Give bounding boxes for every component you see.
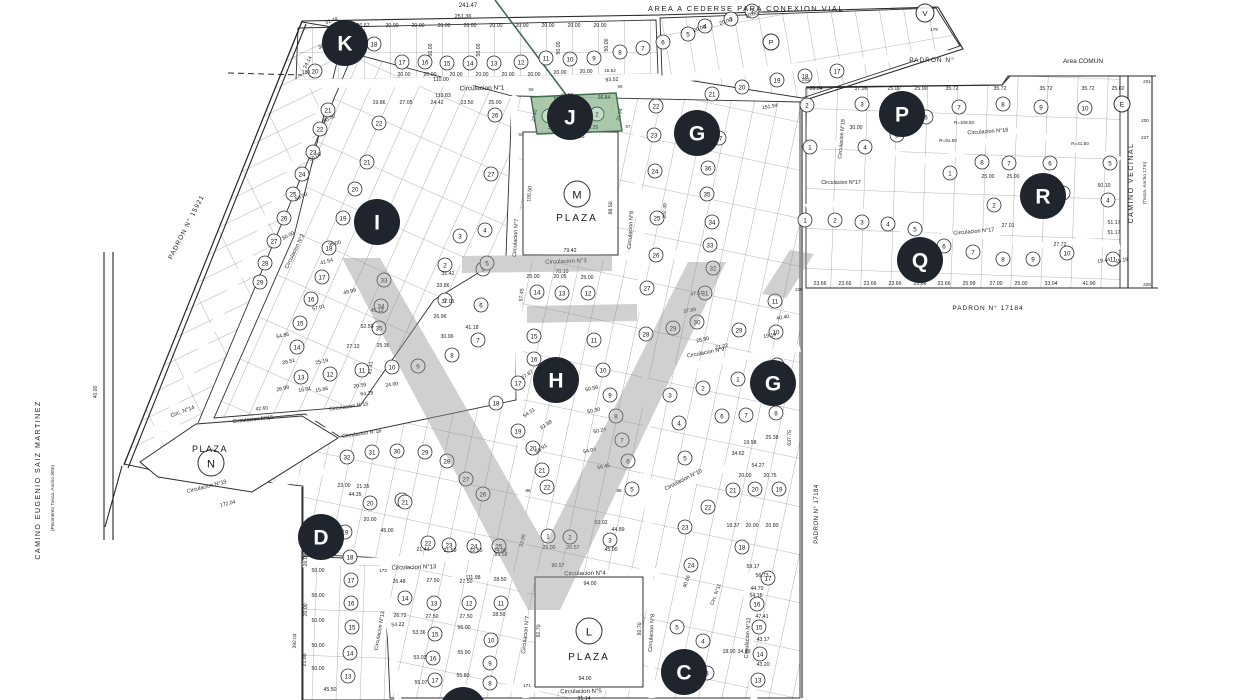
svg-text:18: 18 <box>371 41 378 48</box>
marker-R[interactable]: R <box>1020 173 1066 219</box>
svg-text:14: 14 <box>294 344 301 351</box>
svg-text:D: D <box>313 527 328 550</box>
svg-text:35: 35 <box>704 191 711 198</box>
svg-text:15.19: 15.19 <box>1115 257 1129 265</box>
svg-text:21.00: 21.00 <box>302 653 308 666</box>
svg-text:20.00: 20.00 <box>450 72 463 78</box>
svg-text:6: 6 <box>479 302 483 309</box>
svg-text:20: 20 <box>367 500 374 507</box>
svg-text:7: 7 <box>971 249 975 256</box>
svg-text:19: 19 <box>515 428 522 435</box>
svg-text:25.38: 25.38 <box>766 435 779 441</box>
svg-text:25.00: 25.00 <box>581 275 594 281</box>
svg-text:23: 23 <box>651 132 658 139</box>
svg-text:19: 19 <box>776 486 783 493</box>
svg-text:15: 15 <box>531 333 538 340</box>
svg-text:21.59: 21.59 <box>444 548 457 554</box>
svg-text:5: 5 <box>1108 160 1112 167</box>
svg-text:55.80: 55.80 <box>457 673 470 679</box>
cadastral-plan-image: 1255.7336.8427.4035.6730.2521.9459585755… <box>0 0 1240 700</box>
svg-text:28: 28 <box>262 260 269 267</box>
svg-text:17: 17 <box>432 677 439 684</box>
svg-text:17: 17 <box>515 380 522 387</box>
svg-text:20.00: 20.00 <box>412 23 425 29</box>
svg-text:1: 1 <box>736 376 740 383</box>
svg-text:173: 173 <box>379 568 387 573</box>
svg-text:15: 15 <box>432 631 439 638</box>
svg-text:50.00: 50.00 <box>556 41 562 54</box>
svg-text:3: 3 <box>458 233 462 240</box>
svg-text:50.00: 50.00 <box>312 666 325 672</box>
svg-text:(Pavimento Tosca. Ancho 30m): (Pavimento Tosca. Ancho 30m) <box>50 464 56 531</box>
svg-text:4: 4 <box>701 638 705 645</box>
svg-text:18.37: 18.37 <box>727 523 740 529</box>
svg-text:31: 31 <box>369 449 376 456</box>
svg-text:4: 4 <box>863 144 867 151</box>
svg-text:15: 15 <box>756 624 763 631</box>
svg-text:14: 14 <box>534 289 541 296</box>
svg-text:23.66: 23.66 <box>889 281 902 287</box>
svg-text:2: 2 <box>701 385 705 392</box>
svg-text:19: 19 <box>774 77 781 84</box>
svg-text:L: L <box>586 626 592 638</box>
svg-text:P: P <box>769 40 774 47</box>
svg-text:13: 13 <box>491 60 498 67</box>
svg-text:8: 8 <box>618 49 622 56</box>
svg-text:M: M <box>572 189 581 201</box>
marker-G[interactable]: G <box>750 360 796 406</box>
svg-text:8: 8 <box>1001 256 1005 263</box>
svg-text:45.50: 45.50 <box>324 687 337 693</box>
svg-text:21: 21 <box>364 159 371 166</box>
svg-text:6: 6 <box>942 243 946 250</box>
svg-text:AREA A CEDERSE PARA CONEXION V: AREA A CEDERSE PARA CONEXION VIAL <box>648 4 844 13</box>
svg-text:27.50: 27.50 <box>426 614 439 620</box>
svg-text:10: 10 <box>567 56 574 63</box>
svg-text:44.89: 44.89 <box>612 527 625 533</box>
svg-text:20.00: 20.00 <box>594 23 607 29</box>
svg-text:22: 22 <box>376 120 383 127</box>
svg-text:20.00: 20.00 <box>502 72 515 78</box>
svg-text:24.42: 24.42 <box>431 100 444 106</box>
svg-text:22: 22 <box>653 103 660 110</box>
svg-text:180: 180 <box>302 70 311 76</box>
svg-text:26.48: 26.48 <box>393 579 406 585</box>
svg-text:19.86: 19.86 <box>373 100 386 106</box>
svg-text:25.00: 25.00 <box>489 100 502 106</box>
svg-text:14: 14 <box>347 650 354 657</box>
svg-text:94.00: 94.00 <box>584 581 597 587</box>
svg-text:44.70: 44.70 <box>751 586 764 592</box>
svg-text:E: E <box>1120 102 1125 109</box>
svg-text:33.04: 33.04 <box>1045 281 1058 287</box>
svg-text:J: J <box>564 107 576 130</box>
svg-text:15: 15 <box>349 624 356 631</box>
svg-text:11: 11 <box>359 367 366 374</box>
svg-text:28.50: 28.50 <box>494 577 507 583</box>
watermark-bar <box>527 304 637 323</box>
svg-text:27: 27 <box>488 171 495 178</box>
svg-text:19.98: 19.98 <box>744 440 757 446</box>
svg-text:13: 13 <box>559 290 566 297</box>
svg-text:29: 29 <box>736 327 743 334</box>
svg-text:17: 17 <box>834 68 841 75</box>
svg-text:20.00: 20.00 <box>438 23 451 29</box>
svg-text:34.49: 34.49 <box>738 649 751 655</box>
svg-text:37.01: 37.01 <box>442 299 455 305</box>
svg-text:57.45: 57.45 <box>518 288 525 302</box>
svg-text:227: 227 <box>1141 135 1149 140</box>
svg-text:PLAZA: PLAZA <box>192 444 228 454</box>
svg-text:R=108.50: R=108.50 <box>954 120 974 125</box>
svg-text:PADRON N° 17184: PADRON N° 17184 <box>952 304 1023 312</box>
svg-text:25.00: 25.00 <box>1015 281 1028 287</box>
svg-text:20.00: 20.00 <box>554 70 567 76</box>
svg-text:45.00: 45.00 <box>605 547 618 553</box>
svg-text:15: 15 <box>297 320 304 327</box>
svg-text:27.01: 27.01 <box>1002 223 1015 229</box>
svg-text:12: 12 <box>585 290 592 297</box>
svg-text:4: 4 <box>677 420 681 427</box>
svg-text:20: 20 <box>739 84 746 91</box>
svg-text:53.03: 53.03 <box>414 655 427 661</box>
svg-text:20.00: 20.00 <box>476 72 489 78</box>
svg-text:50.00: 50.00 <box>428 43 434 56</box>
svg-text:50.00: 50.00 <box>476 43 482 56</box>
svg-text:41.18: 41.18 <box>466 325 479 331</box>
svg-text:59.17: 59.17 <box>747 564 760 570</box>
svg-text:13: 13 <box>431 600 438 607</box>
svg-text:8: 8 <box>980 159 984 166</box>
svg-text:20.00: 20.00 <box>528 72 541 78</box>
svg-text:20.00: 20.00 <box>424 72 437 78</box>
svg-text:28.50: 28.50 <box>493 612 506 618</box>
svg-text:18: 18 <box>347 554 354 561</box>
svg-text:17: 17 <box>399 59 406 66</box>
svg-text:229: 229 <box>795 287 803 292</box>
svg-text:92.70: 92.70 <box>536 624 542 637</box>
svg-text:PADRON N° 17184: PADRON N° 17184 <box>814 484 820 544</box>
svg-text:G: G <box>689 123 705 146</box>
svg-text:27.05: 27.05 <box>400 100 413 106</box>
svg-text:18: 18 <box>493 400 500 407</box>
svg-text:Circulacion N°17: Circulacion N°17 <box>821 180 861 186</box>
svg-text:R: R <box>1035 186 1050 209</box>
svg-text:1: 1 <box>948 170 952 177</box>
svg-text:251.36: 251.36 <box>455 14 472 20</box>
svg-text:8: 8 <box>488 680 492 687</box>
svg-text:50.00: 50.00 <box>312 618 325 624</box>
svg-text:27.13: 27.13 <box>347 344 360 350</box>
svg-text:16: 16 <box>308 296 315 303</box>
svg-text:PLAZA: PLAZA <box>556 213 598 224</box>
svg-text:4: 4 <box>1106 197 1110 204</box>
svg-text:P: P <box>895 104 909 127</box>
svg-text:20.00: 20.00 <box>386 23 399 29</box>
svg-text:2: 2 <box>443 262 447 269</box>
svg-text:20: 20 <box>352 186 359 193</box>
svg-text:V: V <box>922 9 928 18</box>
svg-text:21: 21 <box>539 467 546 474</box>
svg-text:16: 16 <box>754 601 761 608</box>
svg-text:8: 8 <box>774 410 778 417</box>
svg-text:5: 5 <box>913 226 917 233</box>
svg-text:6: 6 <box>1048 160 1052 167</box>
svg-text:29: 29 <box>422 449 429 456</box>
svg-text:13: 13 <box>298 374 305 381</box>
svg-text:Area COMUN: Area COMUN <box>1063 58 1103 65</box>
svg-text:201: 201 <box>1143 79 1151 84</box>
svg-text:20.00: 20.00 <box>568 23 581 29</box>
svg-text:21: 21 <box>730 487 737 494</box>
svg-text:54.22: 54.22 <box>391 622 404 629</box>
svg-text:25.02: 25.02 <box>1112 86 1125 92</box>
svg-text:4: 4 <box>886 221 890 228</box>
svg-text:1: 1 <box>803 217 807 224</box>
svg-text:33: 33 <box>707 242 714 249</box>
svg-text:1: 1 <box>808 144 812 151</box>
svg-text:2: 2 <box>992 202 996 209</box>
svg-text:32: 32 <box>344 454 351 461</box>
svg-text:21.35: 21.35 <box>357 484 370 490</box>
svg-text:200: 200 <box>1141 118 1149 123</box>
svg-text:PADRON N°: PADRON N° <box>909 56 954 64</box>
svg-text:44.35: 44.35 <box>349 492 362 498</box>
svg-text:25.00: 25.00 <box>982 174 995 180</box>
svg-text:10: 10 <box>1064 250 1071 257</box>
svg-text:3: 3 <box>608 537 612 544</box>
svg-text:26: 26 <box>653 252 660 259</box>
svg-text:86: 86 <box>525 488 531 493</box>
marker-J[interactable]: J <box>547 94 593 140</box>
svg-text:34.62: 34.62 <box>732 451 745 457</box>
svg-text:3: 3 <box>860 219 864 226</box>
svg-text:26.72: 26.72 <box>394 613 407 619</box>
svg-text:C: C <box>676 662 691 685</box>
svg-text:637.75: 637.75 <box>787 430 794 446</box>
svg-text:20.00: 20.00 <box>739 473 752 479</box>
svg-text:9: 9 <box>608 392 612 399</box>
svg-text:30.00: 30.00 <box>850 125 863 131</box>
svg-text:25.00: 25.00 <box>915 86 928 92</box>
svg-text:58: 58 <box>617 84 623 89</box>
svg-text:23.00: 23.00 <box>338 483 351 489</box>
svg-text:179: 179 <box>930 27 938 32</box>
svg-text:20.05: 20.05 <box>554 274 567 280</box>
svg-text:7: 7 <box>957 104 961 111</box>
svg-text:14: 14 <box>467 60 474 67</box>
svg-text:21: 21 <box>709 91 716 98</box>
svg-text:45.00: 45.00 <box>381 528 394 534</box>
svg-text:40.00: 40.00 <box>93 386 99 399</box>
svg-text:50.00: 50.00 <box>312 643 325 649</box>
svg-text:8: 8 <box>1001 101 1005 108</box>
svg-text:5: 5 <box>683 455 687 462</box>
svg-text:56.73: 56.73 <box>756 573 769 579</box>
svg-text:11: 11 <box>498 600 505 607</box>
svg-text:26.96: 26.96 <box>434 314 447 320</box>
svg-text:K: K <box>337 33 352 56</box>
svg-text:Circulacion N°1: Circulacion N°1 <box>459 84 504 93</box>
svg-text:11: 11 <box>591 337 598 344</box>
svg-text:34: 34 <box>709 219 716 226</box>
svg-text:20: 20 <box>752 486 759 493</box>
svg-text:20.00: 20.00 <box>364 517 377 523</box>
svg-text:12: 12 <box>327 371 334 378</box>
svg-text:25.99: 25.99 <box>963 281 976 287</box>
svg-text:41.90: 41.90 <box>1083 281 1096 287</box>
svg-text:20.00: 20.00 <box>464 23 477 29</box>
svg-text:G: G <box>765 373 781 396</box>
svg-text:12: 12 <box>518 59 525 66</box>
svg-text:25.00: 25.00 <box>888 86 901 92</box>
svg-text:PLAZA: PLAZA <box>568 652 610 663</box>
svg-text:18.00: 18.00 <box>723 649 736 655</box>
svg-text:15: 15 <box>444 60 451 67</box>
svg-text:9: 9 <box>1031 256 1035 263</box>
svg-text:R=91.50: R=91.50 <box>939 138 957 143</box>
svg-text:15.52: 15.52 <box>604 68 616 73</box>
svg-text:20.00: 20.00 <box>398 72 411 78</box>
svg-text:92.70: 92.70 <box>637 622 643 635</box>
svg-text:56.00: 56.00 <box>458 625 471 631</box>
svg-text:23.66: 23.66 <box>864 281 877 287</box>
svg-text:25: 25 <box>654 215 661 222</box>
svg-text:(Tosca. Ancho 17m): (Tosca. Ancho 17m) <box>1142 161 1148 204</box>
svg-text:23: 23 <box>682 524 689 531</box>
svg-text:CAMINO EUGENIO SAIZ MARTINEZ: CAMINO EUGENIO SAIZ MARTINEZ <box>35 400 42 559</box>
svg-text:21: 21 <box>325 107 332 114</box>
svg-text:31.42: 31.42 <box>442 271 455 277</box>
svg-text:24: 24 <box>688 562 695 569</box>
svg-text:50.10: 50.10 <box>1098 183 1111 189</box>
svg-text:23.66: 23.66 <box>938 281 951 287</box>
svg-text:39.04: 39.04 <box>810 86 823 92</box>
svg-text:50.00: 50.00 <box>604 38 610 51</box>
svg-text:22: 22 <box>705 504 712 511</box>
svg-text:7: 7 <box>1007 160 1011 167</box>
svg-text:57: 57 <box>625 124 631 129</box>
svg-text:26: 26 <box>281 215 288 222</box>
marker-H[interactable]: H <box>533 357 579 403</box>
svg-text:9: 9 <box>1039 104 1043 111</box>
svg-text:10: 10 <box>389 364 396 371</box>
svg-text:24: 24 <box>299 171 306 178</box>
svg-text:Circulacion N°5: Circulacion N°5 <box>560 689 602 696</box>
svg-text:79.42: 79.42 <box>564 248 577 254</box>
svg-text:9: 9 <box>488 660 492 667</box>
svg-text:20.00: 20.00 <box>303 603 309 616</box>
svg-text:55: 55 <box>518 132 524 137</box>
svg-text:94.00: 94.00 <box>579 676 592 682</box>
svg-text:16: 16 <box>422 59 429 66</box>
svg-text:13: 13 <box>345 673 352 680</box>
marker-D[interactable]: D <box>298 514 344 560</box>
svg-text:21: 21 <box>402 499 409 506</box>
svg-text:392.03: 392.03 <box>292 633 299 648</box>
svg-text:29: 29 <box>257 279 264 286</box>
svg-text:27.50: 27.50 <box>460 579 473 585</box>
svg-text:3: 3 <box>668 392 672 399</box>
svg-text:N: N <box>207 458 215 470</box>
svg-text:5: 5 <box>630 486 634 493</box>
svg-text:10: 10 <box>600 367 607 374</box>
svg-text:18: 18 <box>739 544 746 551</box>
svg-text:20.80: 20.80 <box>766 523 779 529</box>
svg-text:47.41: 47.41 <box>756 614 769 620</box>
svg-text:11: 11 <box>772 298 779 305</box>
svg-text:54.16: 54.16 <box>750 593 763 599</box>
svg-text:23.50: 23.50 <box>461 100 474 106</box>
svg-text:27.72: 27.72 <box>1054 242 1067 248</box>
svg-text:12: 12 <box>466 600 473 607</box>
marker-G[interactable]: G <box>674 110 720 156</box>
svg-text:20: 20 <box>312 68 319 75</box>
marker-C[interactable]: C <box>661 649 707 695</box>
svg-text:19: 19 <box>340 215 347 222</box>
svg-text:50.00: 50.00 <box>312 568 325 574</box>
cadastral-map: 1255.7336.8427.4035.6730.2521.9459585755… <box>0 0 1240 700</box>
svg-text:8: 8 <box>450 352 454 359</box>
svg-text:27.00: 27.00 <box>990 281 1003 287</box>
svg-text:55.90: 55.90 <box>458 650 471 656</box>
svg-text:2: 2 <box>805 102 809 109</box>
marker-P[interactable]: P <box>879 91 925 137</box>
svg-text:20.00: 20.00 <box>542 23 555 29</box>
svg-text:20.00: 20.00 <box>516 23 529 29</box>
svg-text:55.07: 55.07 <box>415 680 428 686</box>
svg-text:20.00: 20.00 <box>580 69 593 75</box>
svg-text:35.72: 35.72 <box>1082 86 1095 92</box>
svg-text:35.72: 35.72 <box>1040 86 1053 92</box>
svg-text:14: 14 <box>402 595 409 602</box>
svg-text:6: 6 <box>720 413 724 420</box>
marker-I[interactable]: I <box>354 199 400 245</box>
svg-text:59: 59 <box>528 87 534 92</box>
svg-text:241.47: 241.47 <box>459 3 478 9</box>
marker-Q[interactable]: Q <box>897 237 943 283</box>
svg-text:22.55: 22.55 <box>470 548 483 554</box>
svg-text:20.00: 20.00 <box>490 23 503 29</box>
svg-text:7: 7 <box>476 337 480 344</box>
svg-text:202: 202 <box>802 77 810 82</box>
svg-text:21.44: 21.44 <box>417 547 430 553</box>
svg-text:27.50: 27.50 <box>427 578 440 584</box>
svg-text:51.17: 51.17 <box>1108 220 1121 226</box>
svg-text:16: 16 <box>430 655 437 662</box>
svg-text:36: 36 <box>705 165 712 172</box>
svg-text:27: 27 <box>644 285 651 292</box>
svg-text:37.96: 37.96 <box>855 86 868 92</box>
svg-text:171: 171 <box>523 683 531 688</box>
svg-text:52.50: 52.50 <box>361 324 374 330</box>
svg-text:24: 24 <box>652 168 659 175</box>
svg-text:54.27: 54.27 <box>752 463 765 469</box>
svg-text:16: 16 <box>348 600 355 607</box>
svg-text:228: 228 <box>1143 282 1151 287</box>
svg-text:35.72: 35.72 <box>946 86 959 92</box>
svg-text:119.83: 119.83 <box>435 93 451 99</box>
svg-text:Q: Q <box>912 250 928 273</box>
svg-text:I: I <box>374 212 380 235</box>
svg-text:CAMINO VECINAL: CAMINO VECINAL <box>1128 143 1135 224</box>
svg-text:20.00: 20.00 <box>746 523 759 529</box>
svg-text:64.28: 64.28 <box>360 390 374 397</box>
marker-K[interactable]: K <box>322 20 368 66</box>
svg-text:17: 17 <box>348 577 355 584</box>
svg-text:33.86: 33.86 <box>437 283 450 289</box>
svg-text:3: 3 <box>860 101 864 108</box>
